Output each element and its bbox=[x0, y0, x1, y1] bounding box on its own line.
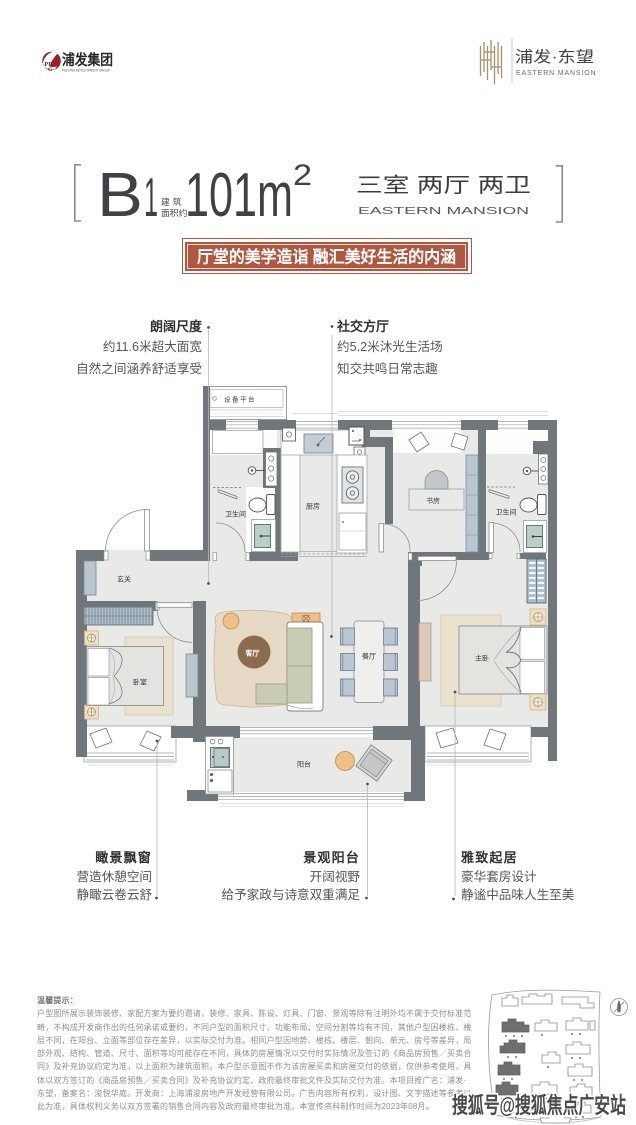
svg-text:卫生间: 卫生间 bbox=[225, 510, 246, 519]
svg-text:客厅: 客厅 bbox=[245, 649, 260, 658]
svg-text:搜狐号@搜狐焦点广安站: 搜狐号@搜狐焦点广安站 bbox=[452, 1093, 626, 1118]
svg-text:卫生间: 卫生间 bbox=[496, 508, 517, 517]
svg-text:阳台: 阳台 bbox=[297, 760, 311, 769]
svg-text:厨房: 厨房 bbox=[306, 502, 320, 511]
svg-text:玄关: 玄关 bbox=[117, 575, 131, 584]
svg-text:餐厅: 餐厅 bbox=[362, 652, 376, 661]
svg-text:书房: 书房 bbox=[426, 496, 440, 505]
svg-text:卧室: 卧室 bbox=[133, 678, 147, 687]
svg-text:设备平台: 设备平台 bbox=[224, 395, 256, 404]
svg-text:主卧: 主卧 bbox=[475, 654, 489, 663]
